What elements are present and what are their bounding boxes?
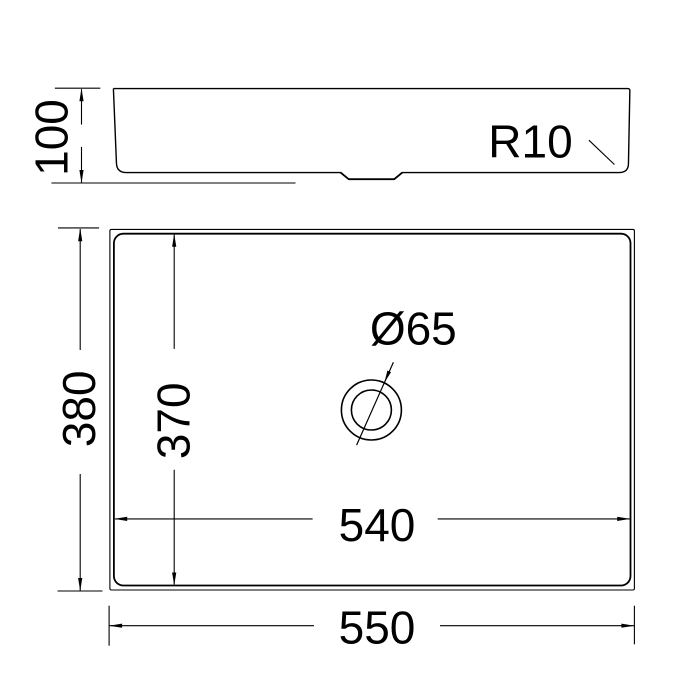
- svg-text:370: 370: [148, 382, 200, 459]
- svg-text:550: 550: [339, 602, 416, 654]
- svg-text:100: 100: [26, 99, 78, 176]
- svg-text:R10: R10: [488, 116, 572, 168]
- svg-text:380: 380: [53, 370, 105, 447]
- svg-text:Ø65: Ø65: [370, 303, 457, 355]
- svg-text:540: 540: [339, 499, 416, 551]
